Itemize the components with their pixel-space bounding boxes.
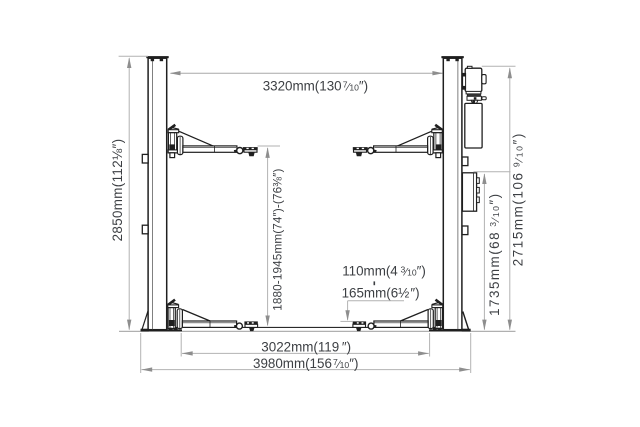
svg-text:1880-1945mm(74″)-(76⅜″): 1880-1945mm(74″)-(76⅜″) — [271, 169, 284, 311]
svg-text:165mm(6½ ″): 165mm(6½ ″) — [342, 286, 420, 301]
svg-text:3022mm(119 ″): 3022mm(119 ″) — [261, 339, 351, 354]
svg-text:2850mm(112⅛″): 2850mm(112⅛″) — [110, 139, 125, 242]
